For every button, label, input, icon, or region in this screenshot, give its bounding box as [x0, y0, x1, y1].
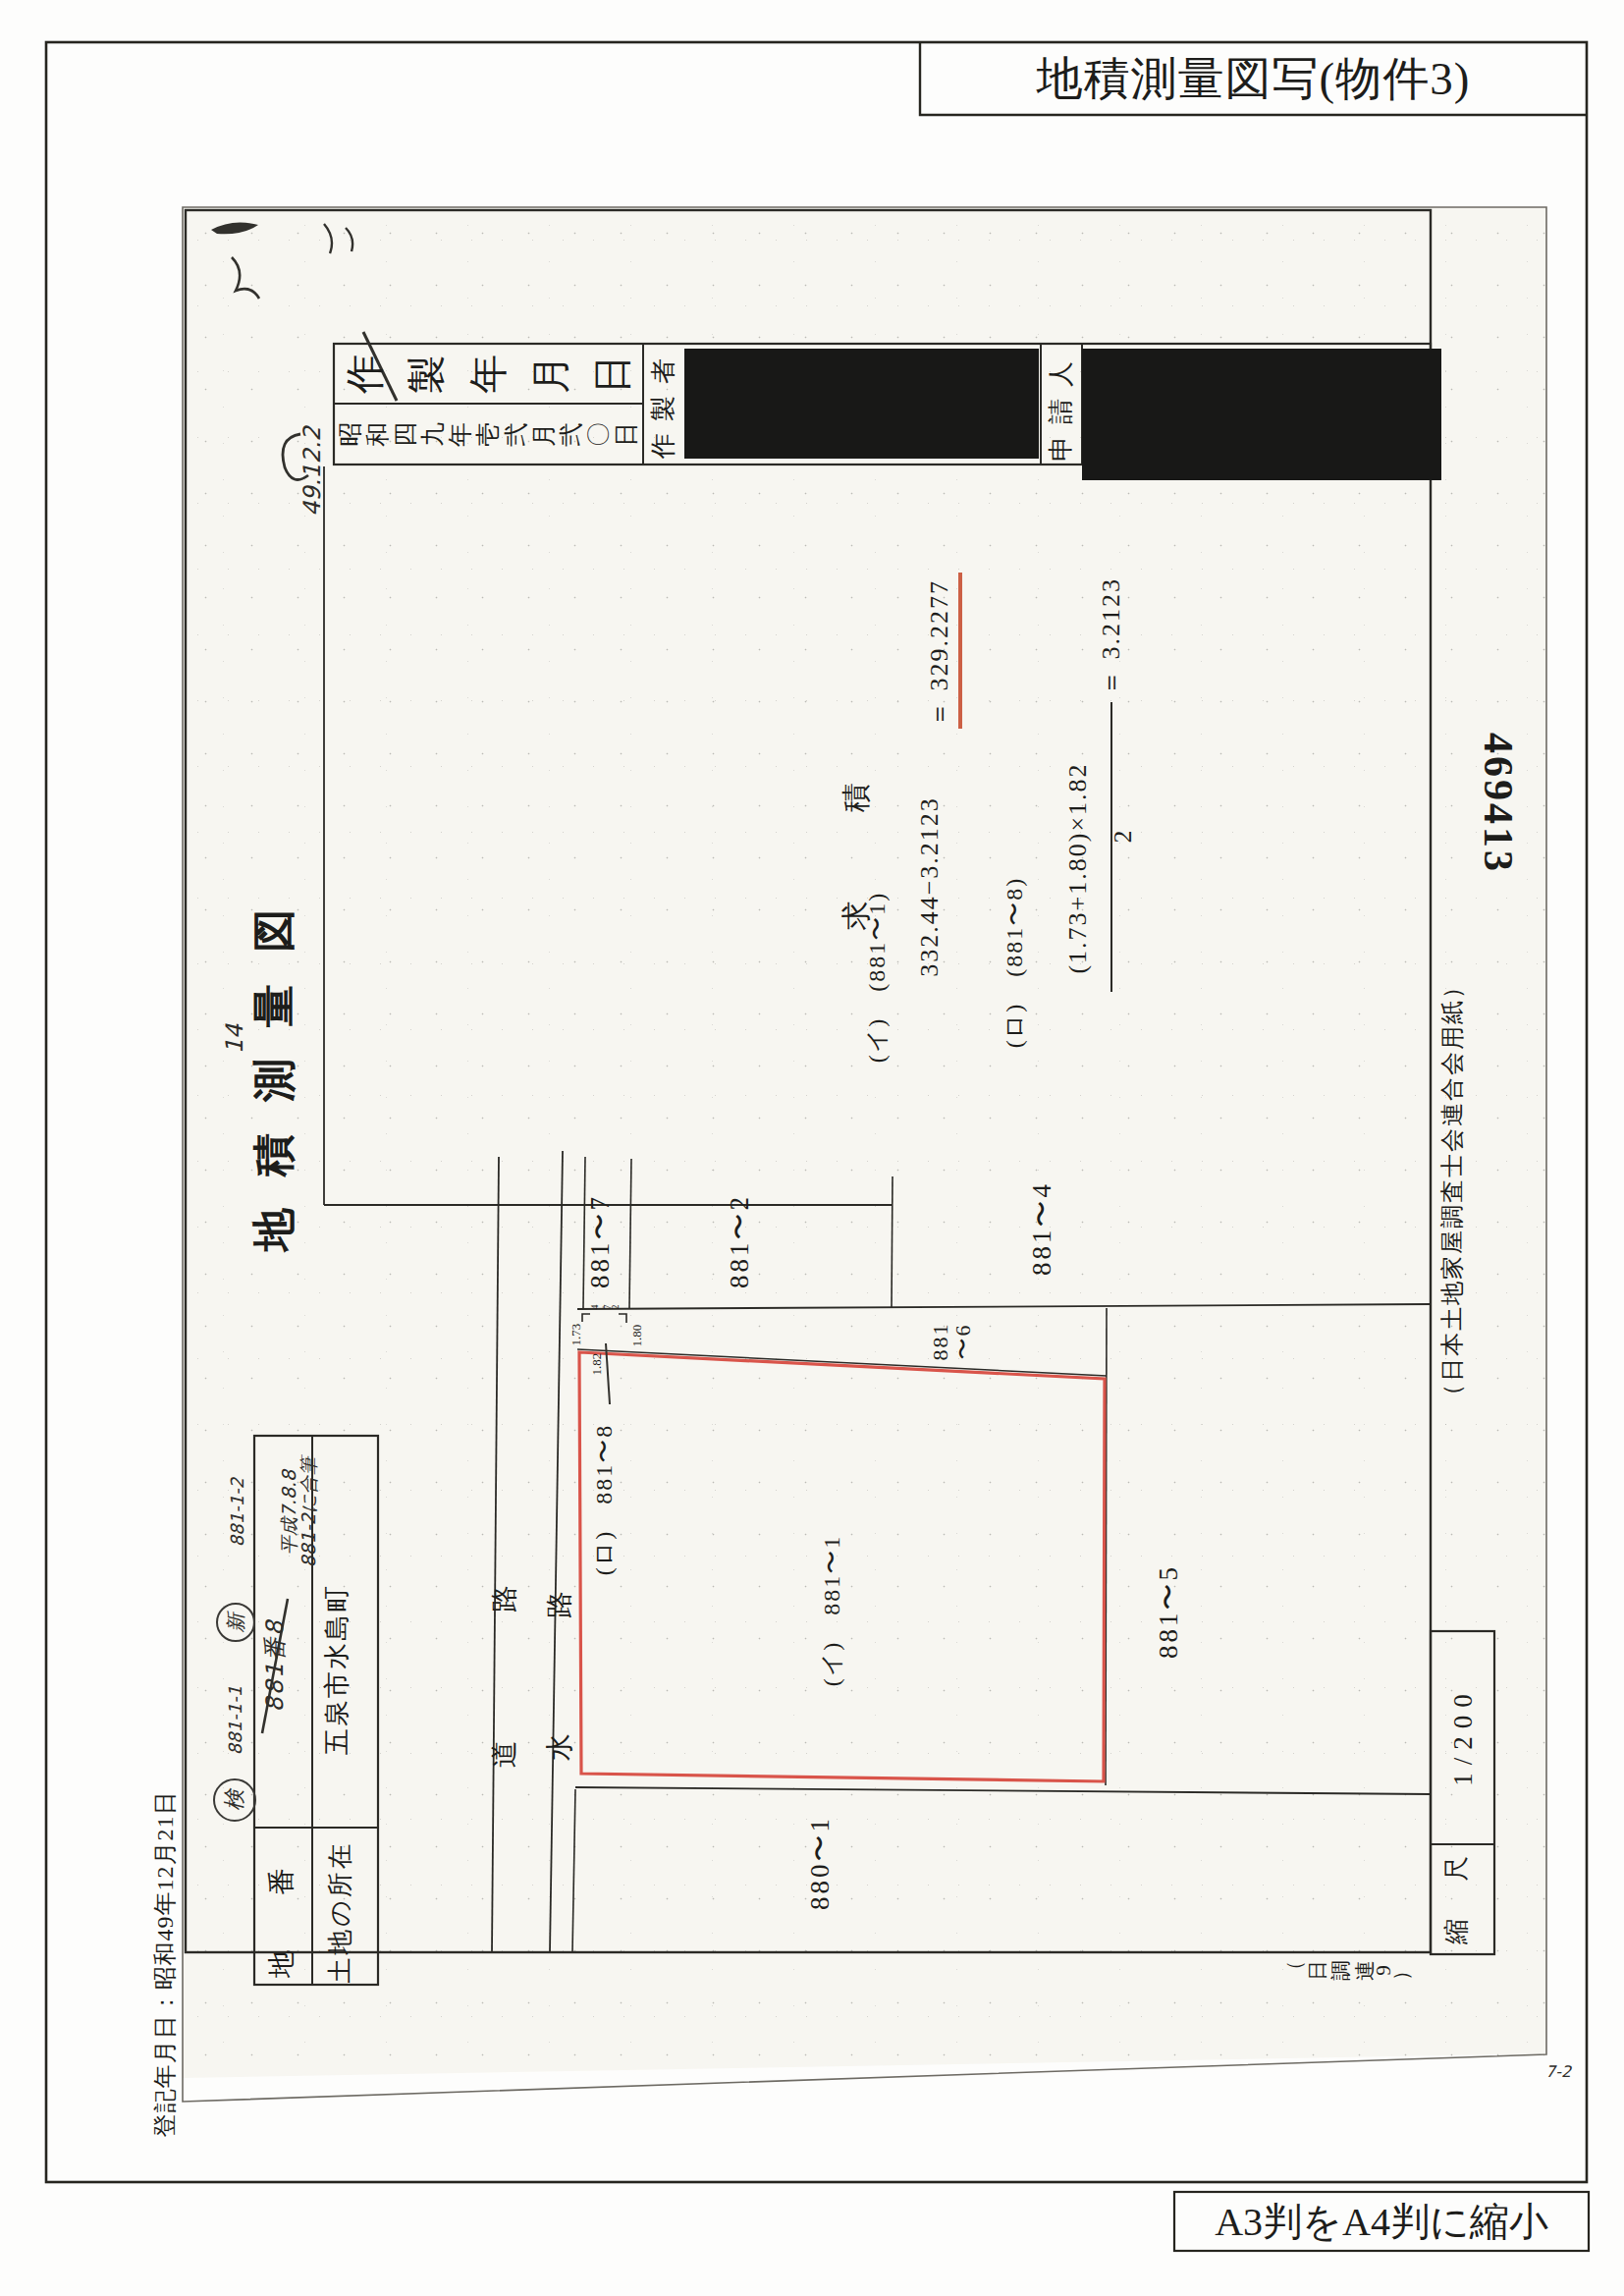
page-mark: 7-2: [1545, 2062, 1571, 2081]
boundary-881-2-4: [892, 1176, 893, 1308]
form-code-note: （日調連9）: [1284, 1957, 1412, 1983]
label-water: 水路: [546, 1476, 573, 1761]
scale-label: 縮 尺: [1444, 1850, 1470, 1944]
label-lot-881-6-line1: 881: [930, 1323, 951, 1361]
calc-row2-result: ＝ 3.2123: [1099, 577, 1124, 695]
scribble-blob: [211, 222, 258, 234]
scanned-document-page: 地積測量図写(物件3) A3判をA4判に縮小 登記年月日：昭和49年12月21日…: [0, 0, 1624, 2296]
boundary-881-7-east: [629, 1159, 631, 1308]
boundary-north: [577, 1304, 1431, 1309]
margin-note-new: 881-1-2: [229, 1478, 246, 1547]
stamp-new-char: 新: [223, 1613, 249, 1632]
calc-row2-numerator: (1.73+1.80)×1.82: [1065, 762, 1091, 973]
calc-row1-result: ＝ 329.2277: [927, 579, 952, 727]
association-paper-note: （日本土地家屋調査士会連合会用紙）: [1440, 973, 1464, 1407]
stamp-old-circle: 検: [213, 1778, 256, 1822]
created-date-label: 作製年月日: [346, 347, 632, 402]
creator-label: 作製者: [651, 347, 677, 459]
corner-tick-right: [619, 1314, 626, 1323]
calc-row1-expr: 332.44−3.2123: [917, 796, 943, 977]
label-lot-881-2: 881〜2: [727, 1194, 753, 1288]
copy-title: 地積測量図写(物件3): [1037, 48, 1471, 110]
boundary-south-west-leg: [572, 1789, 575, 1952]
calc-row1-label: (イ) (881〜1): [865, 892, 889, 1064]
label-lot-881-7: 881〜7: [587, 1194, 614, 1288]
calc-row2-denominator: 2: [1110, 831, 1136, 844]
old-lot-number-crossed: 881番8: [263, 1618, 287, 1712]
label-lot-881-4: 881〜4: [1029, 1181, 1056, 1276]
label-lot-880-1: 880〜1: [807, 1816, 834, 1910]
location-value: 五泉市水島町: [324, 1584, 351, 1755]
copy-title-box-area: 地積測量図写(物件3): [920, 42, 1587, 115]
label-road: 道路: [491, 1457, 518, 1768]
reduction-note: A3判をA4判に縮小: [1215, 2195, 1548, 2249]
scribble-curl-2: [324, 224, 352, 253]
margin-note-old: 881-1-1: [227, 1686, 244, 1755]
merge-note: 881-2に合筆: [299, 1457, 318, 1568]
document-title: 地積測量図: [253, 878, 297, 1251]
dim-1-80: 1.80: [630, 1325, 643, 1347]
handwritten-date-note: 49.12.2: [300, 426, 324, 517]
label-lot-881-8: (ロ) 881〜8: [592, 1424, 616, 1576]
registration-note: 登記年月日：昭和49年12月21日: [153, 1791, 177, 2138]
reduction-note-box-area: A3判をA4判に縮小: [1174, 2192, 1589, 2251]
label-lot-881-1: (イ) 881〜1: [820, 1535, 843, 1687]
linework-layer: [0, 0, 1624, 2296]
paper-edge: [183, 207, 1546, 2102]
lot-number-label: 地 番: [268, 1854, 296, 1978]
scribble-curl-1: [232, 257, 259, 299]
location-label: 土地の所在: [328, 1840, 353, 1984]
created-date-value: 昭和四九年壱弐月弐〇日: [338, 409, 638, 460]
stamp-new-circle: 新: [216, 1603, 255, 1642]
dim-1-73: 1.73: [569, 1324, 582, 1346]
dim-1-82: 1.82: [590, 1353, 603, 1376]
applicant-label: 申請人: [1049, 350, 1074, 462]
label-lot-881-5: 881〜5: [1156, 1564, 1182, 1659]
corner-tick-left: [582, 1314, 590, 1322]
redaction-bar-applicant: [1082, 349, 1441, 480]
merge-date-note: 平成7.8.8: [280, 1470, 298, 1555]
label-lot-881-6-line2: 〜6: [952, 1324, 974, 1360]
scale-value: 1/200: [1450, 1686, 1477, 1786]
parcel-north-black-line: [577, 1349, 1107, 1376]
redaction-bar-creator: [684, 349, 1039, 459]
boundary-south: [575, 1787, 1431, 1794]
sheet-number-note: 14: [223, 1024, 246, 1055]
dim-4-72: 4.72: [592, 1301, 618, 1313]
calc-row2-label: (ロ) (881〜8): [1002, 877, 1026, 1049]
stamp-old-char: 検: [220, 1789, 249, 1811]
form-serial-number: 469413: [1478, 733, 1519, 874]
